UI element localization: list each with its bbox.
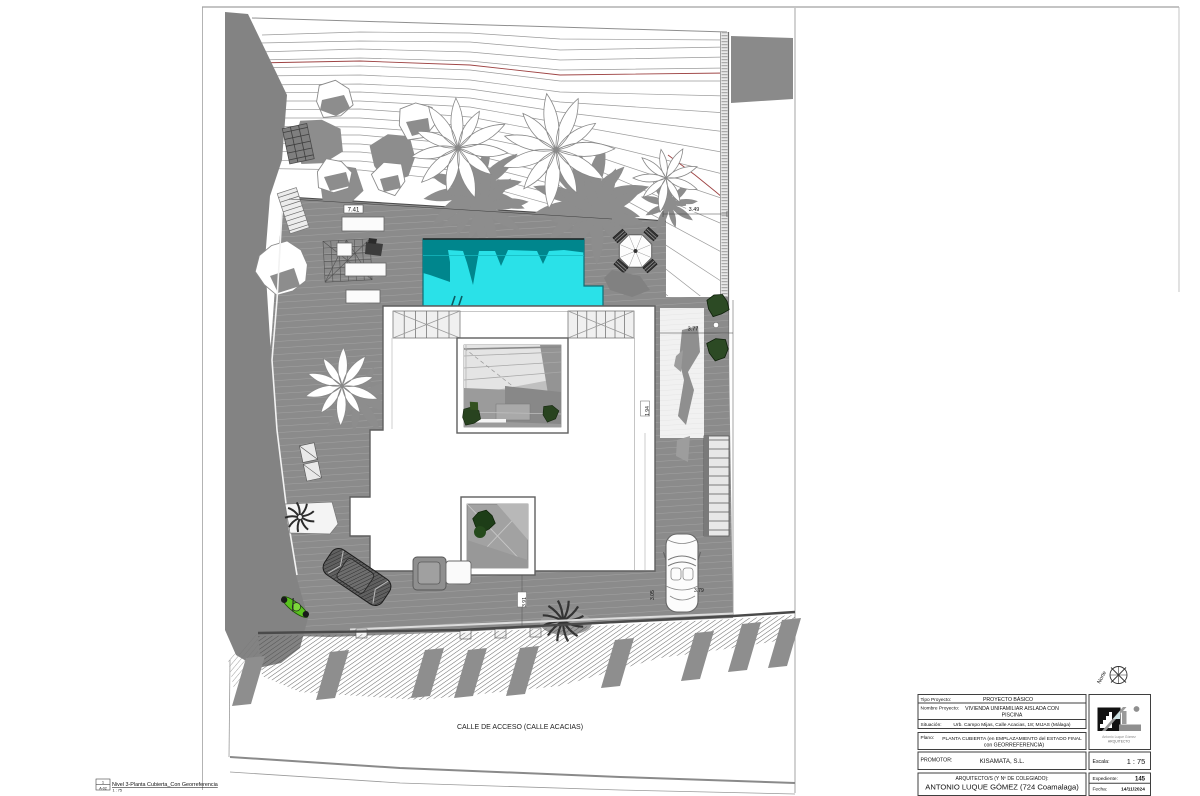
- svg-text:PROMOTOR:: PROMOTOR:: [921, 758, 953, 764]
- svg-text:KISAMATA, S.L.: KISAMATA, S.L.: [980, 758, 1025, 765]
- svg-text:Tipo Proyecto:: Tipo Proyecto:: [921, 697, 952, 703]
- svg-text:Nivel 3-Planta Cubierta_Con Ge: Nivel 3-Planta Cubierta_Con Georreferenc…: [112, 782, 218, 788]
- svg-text:1 : 75: 1 : 75: [113, 789, 123, 793]
- svg-text:3.79: 3.79: [694, 588, 704, 594]
- svg-text:ARQUITECTO/S (Y Nº DE COLEGIAD: ARQUITECTO/S (Y Nº DE COLEGIADO):: [955, 776, 1048, 782]
- svg-text:ARQUITECTO: ARQUITECTO: [1108, 740, 1131, 744]
- svg-text:PLANTA CUBIERTA (en EMPLAZAMIE: PLANTA CUBIERTA (en EMPLAZAMIENTO del ES…: [942, 736, 1082, 742]
- svg-text:1 : 75: 1 : 75: [1127, 757, 1146, 766]
- svg-text:Urb. Campo Mijas, Calle Acacia: Urb. Campo Mijas, Calle Acacias, 18; MIJ…: [953, 722, 1071, 728]
- svg-text:Antonio Luque Gómez: Antonio Luque Gómez: [1102, 735, 1136, 739]
- svg-text:VIVIENDA UNIFAMILIAR AISLADA C: VIVIENDA UNIFAMILIAR AISLADA CON: [965, 706, 1059, 712]
- svg-text:145: 145: [1135, 777, 1146, 783]
- svg-text:3.05: 3.05: [650, 590, 656, 600]
- svg-text:A-02: A-02: [99, 786, 107, 790]
- svg-text:1.94: 1.94: [645, 406, 651, 416]
- svg-text:3.49: 3.49: [689, 207, 700, 213]
- svg-text:3.91: 3.91: [522, 597, 528, 607]
- svg-text:Escala:: Escala:: [1093, 759, 1110, 765]
- svg-text:Plano:: Plano:: [921, 735, 935, 741]
- svg-text:3.77: 3.77: [688, 327, 699, 333]
- svg-text:ANTONIO LUQUE GÓMEZ (724 Coama: ANTONIO LUQUE GÓMEZ (724 Coamalaga): [925, 783, 1079, 792]
- svg-text:7.41: 7.41: [348, 208, 360, 214]
- svg-text:Fecha:: Fecha:: [1093, 787, 1108, 793]
- svg-text:con GEORREFERENCIA): con GEORREFERENCIA): [984, 743, 1045, 749]
- svg-text:Nombre Proyecto:: Nombre Proyecto:: [921, 706, 960, 712]
- svg-text:Situación:: Situación:: [921, 722, 942, 728]
- svg-text:14/11/2024: 14/11/2024: [1121, 787, 1145, 793]
- svg-text:PISCINA: PISCINA: [1002, 713, 1023, 719]
- svg-text:Expediente:: Expediente:: [1093, 776, 1118, 782]
- svg-text:PROYECTO BÁSICO: PROYECTO BÁSICO: [983, 696, 1033, 703]
- svg-text:CALLE DE ACCESO (CALLE ACACIAS: CALLE DE ACCESO (CALLE ACACIAS): [457, 724, 583, 731]
